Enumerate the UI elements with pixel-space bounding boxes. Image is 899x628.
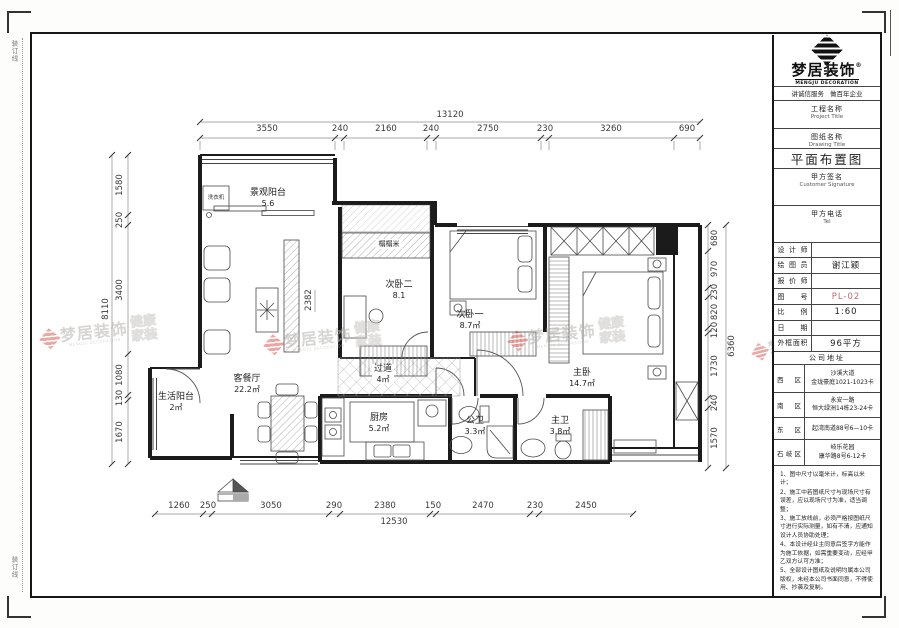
dim-top-seg: 2750 [477,124,499,134]
drawing-title: 平面布置图 [774,149,880,169]
title-block: 梦居装饰® MENGJU DECORATION 讲诚信服务 做百年企业 工程名称… [772,35,880,596]
dim-bottom-seg: 230 [527,501,543,511]
note-item: 4、本设计经业主同意后签字方能作为施工依据，如需重要变动，应经甲乙双方认可方准； [780,541,876,566]
dim-top-seg: 230 [537,124,553,134]
room-label-master: 主卧 14.7㎡ [569,368,595,388]
floor-plan-canvas [100,100,780,560]
company-address-header: 公司地址 [774,352,880,366]
dim-bottom-seg: 250 [200,501,216,511]
field-draftsman: 绘图员 谢江颖 [774,258,880,274]
sheet-corner-mark [862,11,886,33]
room-label-balcony-view: 景观阳台 5.6 [250,188,286,208]
field-drawing-no: 图号 PL-02 [774,289,880,305]
binding-fold-line [22,38,23,592]
dim-left-seg: 250 [115,212,125,228]
dim-left-seg: 1580 [115,174,125,196]
dim-right-seg: 680 [710,230,720,246]
dim-top-total: 13120 [436,110,463,120]
address-south: 南区 永安一路 恒大绿洲14栋23-24卡 [774,393,880,419]
customer-signature-field: 甲方签名 Customer Signature [774,169,880,206]
dim-bottom-seg: 3050 [260,501,282,511]
field-date: 日期 [774,321,880,337]
room-label-bedroom1: 次卧一 8.7㎡ [456,310,483,330]
room-label-bath-public: 公卫 3.3㎡ [465,416,486,436]
dim-left-total: 8110 [101,298,111,320]
room-label-hallway: 过道 4㎡ [372,364,394,384]
field-quoter: 报价师 [774,274,880,290]
dim-bottom-seg: 2470 [472,501,494,511]
address-west: 西区 沙溪大道 金珑豪庭1021-1023卡 [774,365,880,392]
tatami-annotation: 榻榻米 [376,239,403,249]
note-item: 2、施工中若图纸尺寸与现场尺寸有误差，应以现场尺寸为准，适当调整； [780,489,876,514]
customer-tel-field: 甲方电话 Tel [774,206,880,243]
walls-thin [150,155,700,457]
company-slogan: 讲诚信服务 做百年企业 [774,87,880,102]
room-label-bedroom2: 次卧二 8.1 [385,280,412,300]
dim-bottom-seg: 1260 [168,501,190,511]
dim-top-seg: 2160 [375,124,397,134]
field-scale: 比例 1:60 [774,305,880,321]
note-item: 3、施工放线前，必须严格按图纸尺寸进行实际测量，如有不清，应通知设计人员协助处理… [780,515,876,540]
dim-right-seg: 820 [710,304,720,320]
dim-bottom-total: 12530 [380,517,407,527]
sheet-corner-mark [7,596,31,618]
dim-left-seg: 1080 [115,364,125,386]
dim-right-seg: 230 [710,284,720,300]
washer-annotation: 洗衣机 [208,193,225,201]
dim-bottom-seg: 150 [425,501,441,511]
dim-inner-2382: 2382 [304,289,314,311]
sheet-corner-mark [862,596,886,618]
dim-top-seg: 240 [423,124,439,134]
fold-label-top: 装订线 [9,40,19,63]
dim-left-seg: 130 [115,390,125,406]
dim-right-seg: 1570 [710,427,720,449]
dim-bottom-seg: 290 [326,501,342,511]
company-logo: 梦居装饰® MENGJU DECORATION [774,35,880,87]
dim-bottom-seg: 2380 [374,501,396,511]
field-area: 外框面积 96平方 [774,336,880,352]
note-item: 1、图中尺寸以毫米计，标高以米计； [780,471,876,488]
dim-top-seg: 3550 [256,124,278,134]
walls [150,155,700,462]
dim-right-total: 6360 [727,335,737,357]
dim-left-seg: 3400 [115,279,125,301]
project-title-field: 工程名称 Project Title [774,101,880,129]
dim-bottom-seg: 2450 [575,501,597,511]
sheet-edge-mark [890,10,891,56]
dim-top-seg: 3260 [600,124,622,134]
address-shiqi: 石岐区 岐乐花园 康华路8号6-12卡 [774,440,880,466]
room-label-living: 客餐厅 22.2㎡ [233,374,260,394]
dim-right-seg: 240 [710,395,720,411]
dim-right-seg: 120 [710,322,720,338]
general-notes: 1、图中尺寸以毫米计，标高以米计； 2、施工中若图纸尺寸与现场尺寸有误差，应以现… [774,466,880,595]
fold-label-bottom: 装订线 [9,556,19,579]
room-label-bath-master: 主卫 3.8㎡ [550,416,571,436]
dim-left-seg: 1670 [115,421,125,443]
field-designer: 设计师 [774,243,880,259]
note-item: 5、全部设计图纸及说明均属本公司版权，未经本公司书面同意，不得使用、抄袭及复制。 [780,567,876,592]
drawing-title-label: 图纸名称 Drawing Title [774,129,880,149]
sheet-corner-mark [7,11,31,33]
address-east: 东区 起湾南道88号6—10卡 [774,418,880,440]
dim-right-seg: 1730 [710,355,720,377]
dim-top-seg: 690 [679,124,695,134]
drawing-sheet: { "sheet": { "fold_label": "装订线" }, "bra… [0,0,899,628]
room-label-kitchen: 厨房 5.2㎡ [369,413,390,433]
dim-top-seg: 240 [332,124,348,134]
room-label-balcony-life: 生活阳台 2㎡ [158,392,194,412]
dim-right-seg: 970 [710,261,720,277]
